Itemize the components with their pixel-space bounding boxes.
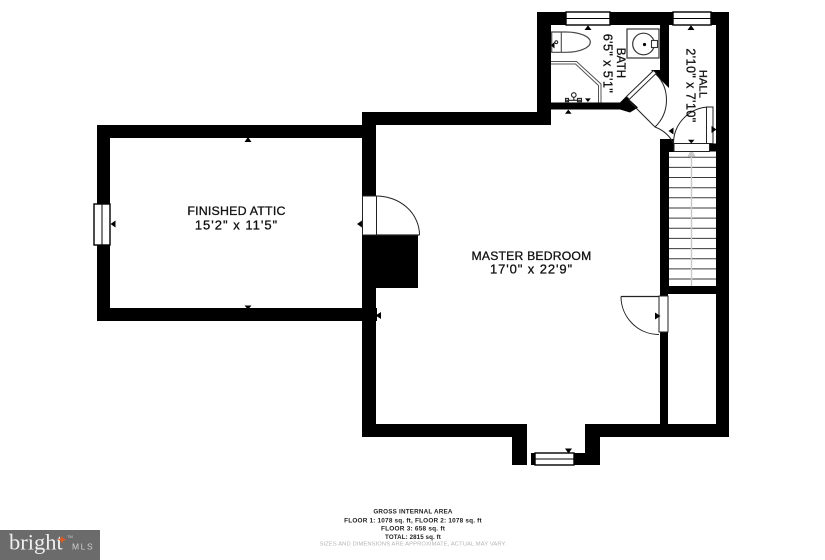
svg-text:17'0" x 22'9": 17'0" x 22'9" (490, 261, 573, 276)
svg-text:bright: bright (9, 530, 63, 555)
svg-text:BATH: BATH (614, 48, 626, 79)
svg-text:2'10" x 7'10": 2'10" x 7'10" (684, 48, 698, 122)
svg-text:MLS: MLS (72, 542, 94, 552)
svg-text:6'5" x 5'1": 6'5" x 5'1" (601, 34, 615, 93)
svg-text:GROSS INTERNAL AREA: GROSS INTERNAL AREA (373, 508, 453, 515)
svg-text:FLOOR 3: 658 sq. ft: FLOOR 3: 658 sq. ft (381, 526, 446, 533)
svg-text:15'2" x 11'5": 15'2" x 11'5" (195, 218, 278, 233)
svg-text:TM: TM (67, 534, 73, 539)
svg-text:SIZES AND DIMENSIONS ARE APPRO: SIZES AND DIMENSIONS ARE APPROXIMATE, AC… (320, 541, 507, 547)
svg-text:FINISHED ATTIC: FINISHED ATTIC (187, 204, 285, 218)
svg-text:FLOOR 1: 1078 sq. ft, FLOOR 2:: FLOOR 1: 1078 sq. ft, FLOOR 2: 1078 sq. … (344, 517, 482, 524)
svg-text:TOTAL: 2815 sq. ft: TOTAL: 2815 sq. ft (385, 534, 441, 541)
